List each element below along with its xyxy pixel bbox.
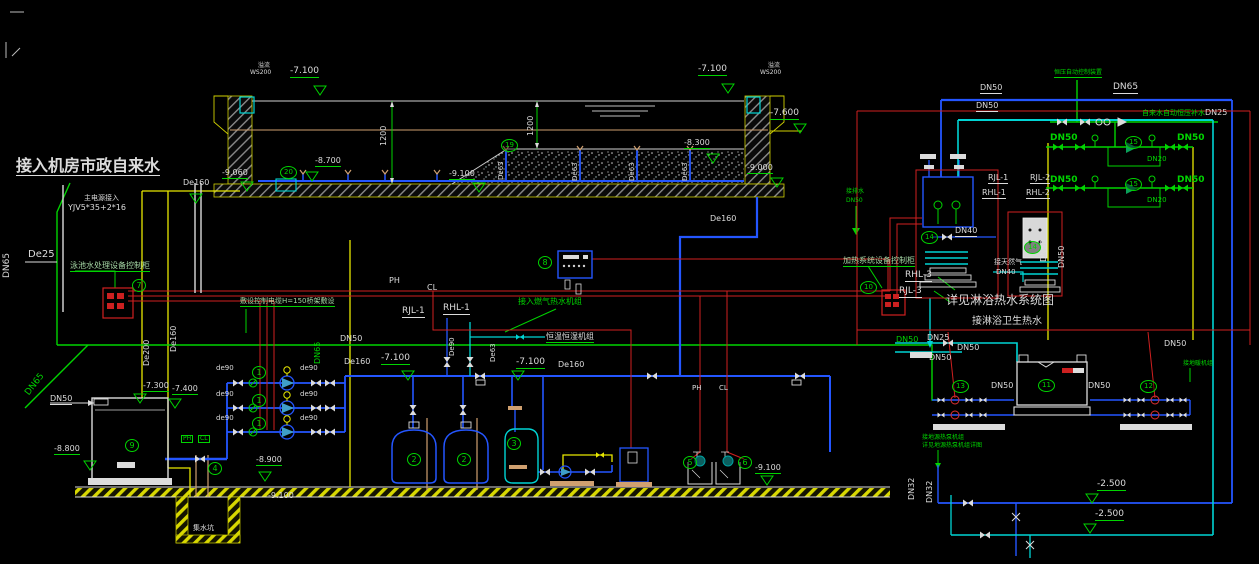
label-elev-9060: -9.060: [222, 169, 248, 179]
label-ph-probe: PH: [692, 385, 702, 392]
label-de90-p2l: de90: [216, 391, 234, 398]
label-dn50-r2: DN50: [957, 344, 979, 352]
label-dn65-tr: DN65: [1113, 83, 1138, 94]
label-elev-7100-hm: -7.100: [516, 358, 545, 369]
label-dn25-makeup: DN25: [1205, 109, 1227, 117]
label-elev-9100-pool: -9.100: [449, 170, 475, 180]
label-dn50-v1: DN50: [1040, 240, 1048, 262]
label-elev-8700: -8.700: [315, 157, 341, 167]
label-sump: 集水坑: [193, 525, 214, 532]
label-dn50-t1: DN50: [980, 84, 1002, 94]
label-elev-7100-hl: -7.100: [381, 354, 410, 365]
label-dn50-r5: DN50: [1088, 382, 1110, 390]
label-elev-7600: -7.600: [770, 109, 799, 120]
equipment-tag-6: 6: [738, 456, 752, 469]
label-dn50-g2: DN50: [1177, 134, 1205, 143]
equipment-tag-12: 12: [1140, 380, 1157, 393]
label-de90-p3r: de90: [300, 415, 318, 422]
equipment-tag-1: 1: [252, 366, 266, 379]
label-dn32-b: DN32: [926, 481, 934, 503]
annotation-layer: 接入机房市政自来水DN65De25主电源接入YJV5*35+2*16泳池水处理设…: [0, 0, 1259, 564]
equipment-tag-10: 10: [860, 281, 877, 294]
label-gshp-2: 详见地源热泵机组详图: [922, 443, 982, 449]
label-press-device: 恒压自动控制装置: [1054, 70, 1102, 78]
label-gshp-1: 接地源热泵机组: [922, 435, 964, 441]
label-dn50-g4: DN50: [1177, 176, 1205, 185]
label-drain-conn-2: DN50: [846, 198, 863, 204]
label-dn20-g1: DN20: [1147, 156, 1167, 163]
equipment-tag-20: 20: [280, 166, 297, 179]
label-dn25-shower: DN25: [927, 334, 949, 342]
label-elev-7400: -7.400: [172, 385, 198, 395]
label-title-conn: 接入机房市政自来水: [16, 158, 160, 176]
label-gas-label-2: DN40: [996, 269, 1016, 276]
label-dn50-r6: DN50: [1164, 340, 1186, 348]
label-de90-p1l: de90: [216, 365, 234, 372]
label-dn65-left: DN65: [3, 253, 12, 278]
label-dn65-mid: DN65: [314, 342, 322, 364]
label-dn50-green-mid: DN50: [340, 335, 362, 343]
label-dn50-t2: DN50: [976, 102, 998, 112]
label-main-power-2: YJV5*35+2*16: [68, 204, 126, 212]
equipment-tag-14: 14: [1024, 241, 1041, 254]
label-de160-header-m: De160: [558, 361, 584, 369]
label-elev-8300: -8.300: [684, 139, 710, 149]
equipment-tag-7: 7: [132, 279, 146, 292]
label-overflow-l2: WS200: [250, 70, 271, 76]
label-de90-riser: De90: [449, 337, 456, 356]
equipment-tag-1: 1: [252, 417, 266, 430]
label-dn50-g3: DN50: [1050, 176, 1078, 185]
label-rjl1-r: RJL-1: [988, 174, 1008, 184]
equipment-tag-8: 8: [538, 256, 552, 269]
label-elev-8900: -8.900: [256, 456, 282, 466]
equipment-tag-1: 1: [252, 394, 266, 407]
label-rhl3: RHL-3: [905, 271, 932, 282]
label-elev-9000: -9.000: [747, 164, 773, 174]
equipment-tag-15: 15: [1125, 136, 1142, 149]
label-dn40-hx: DN40: [955, 227, 977, 237]
label-rjl1-m: RJL-1: [402, 307, 425, 318]
label-cl-top: CL: [427, 284, 437, 292]
label-rhl1-m: RHL-1: [443, 304, 470, 315]
label-dn50-r4: DN50: [991, 382, 1013, 390]
cad-drawing-canvas: 接入机房市政自来水DN65De25主电源接入YJV5*35+2*16泳池水处理设…: [0, 0, 1259, 564]
label-ph-box: PH: [181, 435, 193, 443]
label-elev-7100-pl: -7.100: [290, 67, 319, 78]
label-dn20-g2: DN20: [1147, 197, 1167, 204]
label-de200-v: De200: [143, 340, 151, 366]
label-gas-conn: 接入燃气热水机组: [518, 298, 582, 306]
label-dn32-a: DN32: [908, 478, 916, 500]
label-de160-v: De160: [170, 326, 178, 352]
label-overflow-r2: WS200: [760, 70, 781, 76]
label-dn50-r1: DN50: [896, 336, 918, 344]
label-rhl1-r: RHL-1: [982, 189, 1006, 199]
label-gas-label-1: 接天然气: [994, 259, 1022, 266]
label-rhl2-r: RHL-2: [1026, 189, 1050, 199]
label-cable-note: 敷设控制电缆H=150桥架敷设: [240, 298, 335, 307]
label-rjl2-r: RJL-2: [1030, 174, 1050, 184]
label-elev-2500-b: -2.500: [1095, 510, 1124, 521]
label-drain-conn-1: 接排水: [846, 189, 864, 195]
label-elev-9100-pit: -9.100: [268, 492, 294, 500]
label-floor-heat: 接地暖机组: [1183, 361, 1213, 367]
label-dim-1200-a: 1200: [380, 126, 388, 146]
label-makeup: 自来水自动恒压补水: [1142, 110, 1205, 117]
equipment-tag-9: 9: [125, 439, 139, 452]
label-shower-conn: 接淋浴卫生热水: [972, 317, 1042, 327]
label-elev-2500-a: -2.500: [1097, 480, 1126, 491]
label-cl-box: CL: [198, 435, 210, 443]
equipment-tag-2: 2: [457, 453, 471, 466]
label-de160-drain: De160: [183, 179, 209, 187]
equipment-tag-19: 19: [501, 139, 518, 152]
equipment-tag-4: 4: [208, 462, 222, 475]
label-de63-r3: De63: [629, 162, 636, 181]
label-dim-1200-b: 1200: [527, 116, 535, 136]
label-cab7-label: 泳池水处理设备控制柜: [70, 262, 150, 272]
equipment-tag-13: 13: [952, 380, 969, 393]
label-rjl3: RJL-3: [899, 287, 922, 298]
label-elev-8800: -8.800: [54, 445, 80, 455]
label-dn50-g1: DN50: [1050, 134, 1078, 143]
equipment-tag-11: 11: [1038, 379, 1055, 392]
label-dn50-v2: DN50: [1058, 246, 1066, 268]
label-dn65-diag: DN65: [24, 372, 47, 397]
label-de90-p2r: de90: [300, 391, 318, 398]
label-hengwen: 恒温恒湿机组: [546, 333, 594, 343]
label-dn50-tank9: DN50: [50, 395, 72, 405]
label-de25: De25: [28, 250, 55, 260]
label-ph-top: PH: [389, 277, 400, 285]
equipment-tag-15: 15: [1125, 178, 1142, 191]
label-see-shower: 详见淋浴热水系统图: [946, 294, 1054, 306]
label-de63-r2: De63: [572, 162, 579, 181]
label-cab10-label: 加热系统设备控制柜: [843, 257, 915, 267]
label-de90-p1r: de90: [300, 365, 318, 372]
label-de63-riser-m: De63: [490, 343, 497, 362]
label-elev-9100-r: -9.100: [755, 464, 781, 474]
label-de63-r1: De63: [498, 161, 505, 180]
label-elev-7100-pr: -7.100: [698, 65, 727, 76]
equipment-tag-3: 3: [507, 437, 521, 450]
label-de160-header-l: De160: [344, 358, 370, 366]
label-de63-r4: De63: [682, 162, 689, 181]
label-cl-probe: CL: [719, 385, 728, 392]
label-main-power-1: 主电源接入: [84, 195, 119, 202]
label-dn50-r3: DN50: [929, 354, 951, 362]
label-de90-p3l: de90: [216, 415, 234, 422]
label-elev-7300: -7.300: [143, 382, 169, 392]
label-de160-riser: De160: [710, 215, 736, 223]
equipment-tag-2: 2: [407, 453, 421, 466]
equipment-tag-14: 14: [921, 231, 938, 244]
equipment-tag-5: 5: [683, 456, 697, 469]
